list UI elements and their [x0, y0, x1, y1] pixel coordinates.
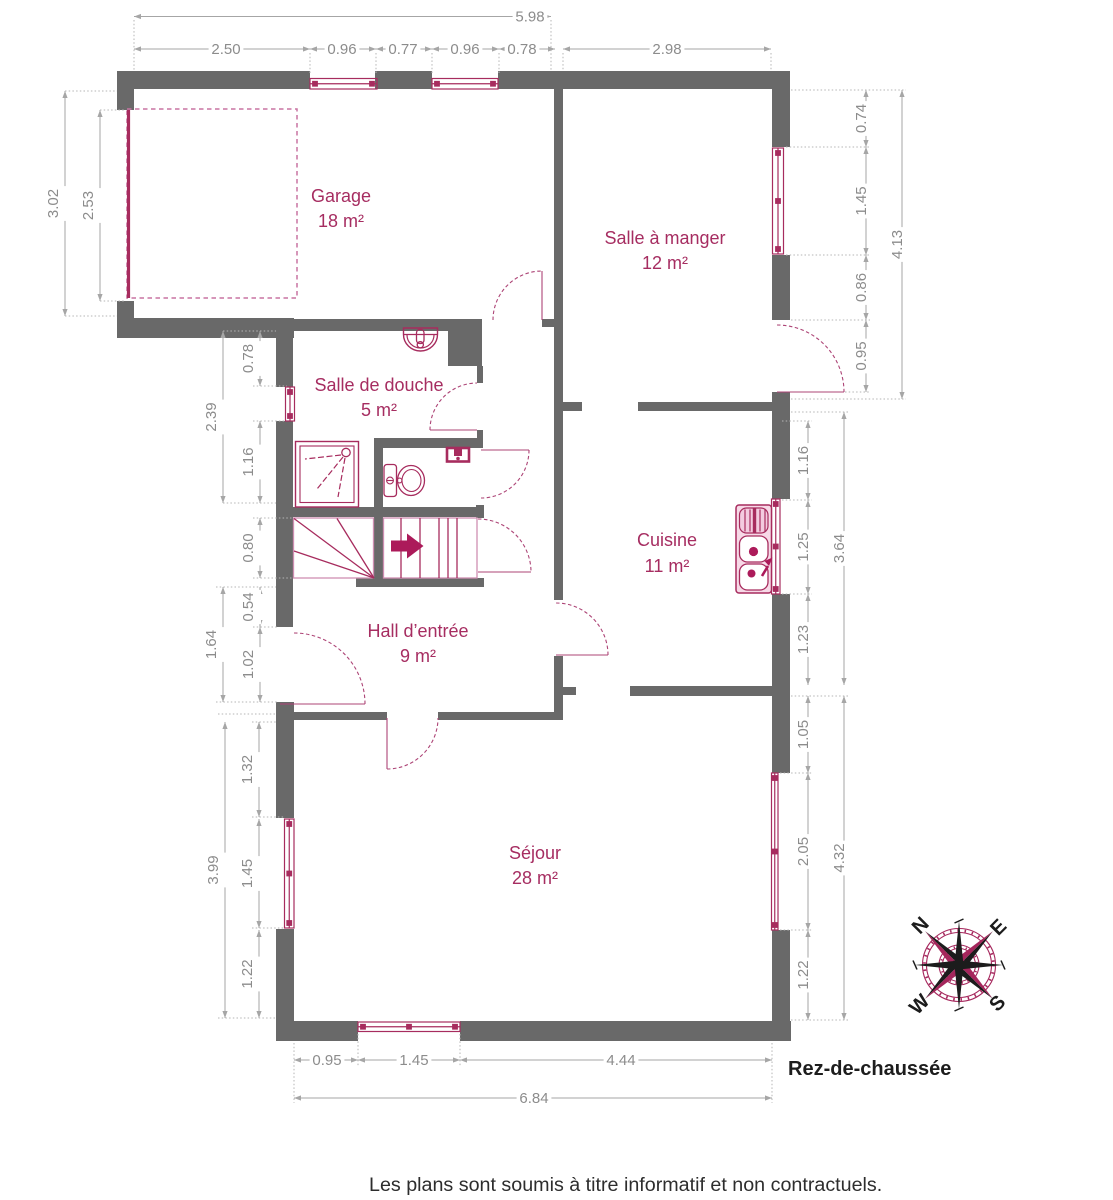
- svg-text:3.02: 3.02: [45, 189, 62, 218]
- svg-text:3.99: 3.99: [205, 855, 222, 884]
- svg-text:0.96: 0.96: [450, 41, 479, 58]
- svg-text:1.32: 1.32: [239, 755, 256, 784]
- svg-text:1.16: 1.16: [240, 447, 257, 476]
- svg-text:1.25: 1.25: [795, 532, 812, 561]
- svg-text:1.45: 1.45: [239, 859, 256, 888]
- svg-text:0.96: 0.96: [327, 41, 356, 58]
- svg-text:1.64: 1.64: [203, 630, 220, 659]
- svg-text:4.44: 4.44: [606, 1052, 635, 1069]
- svg-text:2.53: 2.53: [80, 191, 97, 220]
- svg-text:1.16: 1.16: [795, 446, 812, 475]
- svg-text:1.22: 1.22: [795, 960, 812, 989]
- svg-text:2.98: 2.98: [652, 41, 681, 58]
- svg-text:4.13: 4.13: [889, 230, 906, 259]
- svg-text:3.64: 3.64: [831, 534, 848, 563]
- svg-text:Salle à manger: Salle à manger: [604, 228, 725, 248]
- svg-text:0.74: 0.74: [853, 104, 870, 133]
- svg-text:2.50: 2.50: [211, 41, 240, 58]
- svg-text:1.02: 1.02: [240, 650, 257, 679]
- svg-text:0.86: 0.86: [853, 273, 870, 302]
- svg-text:0.95: 0.95: [853, 341, 870, 370]
- svg-text:0.54: 0.54: [240, 592, 257, 621]
- svg-text:5 m²: 5 m²: [361, 400, 397, 420]
- svg-text:Salle de douche: Salle de douche: [314, 375, 443, 395]
- svg-text:1.05: 1.05: [795, 720, 812, 749]
- svg-text:28 m²: 28 m²: [512, 868, 558, 888]
- svg-text:2.39: 2.39: [203, 402, 220, 431]
- svg-text:11 m²: 11 m²: [645, 556, 690, 576]
- svg-text:6.84: 6.84: [519, 1090, 548, 1107]
- svg-text:1.45: 1.45: [853, 186, 870, 215]
- svg-text:0.95: 0.95: [312, 1052, 341, 1069]
- svg-text:12 m²: 12 m²: [642, 253, 688, 273]
- svg-text:1.22: 1.22: [239, 959, 256, 988]
- svg-text:18 m²: 18 m²: [318, 211, 364, 231]
- svg-text:0.77: 0.77: [388, 41, 417, 58]
- svg-text:2.05: 2.05: [795, 837, 812, 866]
- svg-text:4.32: 4.32: [831, 843, 848, 872]
- svg-text:0.80: 0.80: [240, 533, 257, 562]
- svg-text:Hall d’entrée: Hall d’entrée: [367, 621, 468, 641]
- svg-text:0.78: 0.78: [240, 344, 257, 373]
- svg-text:1.23: 1.23: [795, 625, 812, 654]
- svg-text:5.98: 5.98: [515, 9, 544, 26]
- svg-text:Cuisine: Cuisine: [637, 530, 697, 550]
- svg-text:1.45: 1.45: [399, 1052, 428, 1069]
- svg-text:9 m²: 9 m²: [400, 646, 436, 666]
- svg-text:Les plans sont soumis à titre: Les plans sont soumis à titre informatif…: [369, 1174, 882, 1196]
- svg-text:Séjour: Séjour: [509, 843, 561, 863]
- svg-text:Garage: Garage: [311, 186, 371, 206]
- svg-text:Rez-de-chaussée: Rez-de-chaussée: [788, 1058, 951, 1080]
- svg-text:0.78: 0.78: [507, 41, 536, 58]
